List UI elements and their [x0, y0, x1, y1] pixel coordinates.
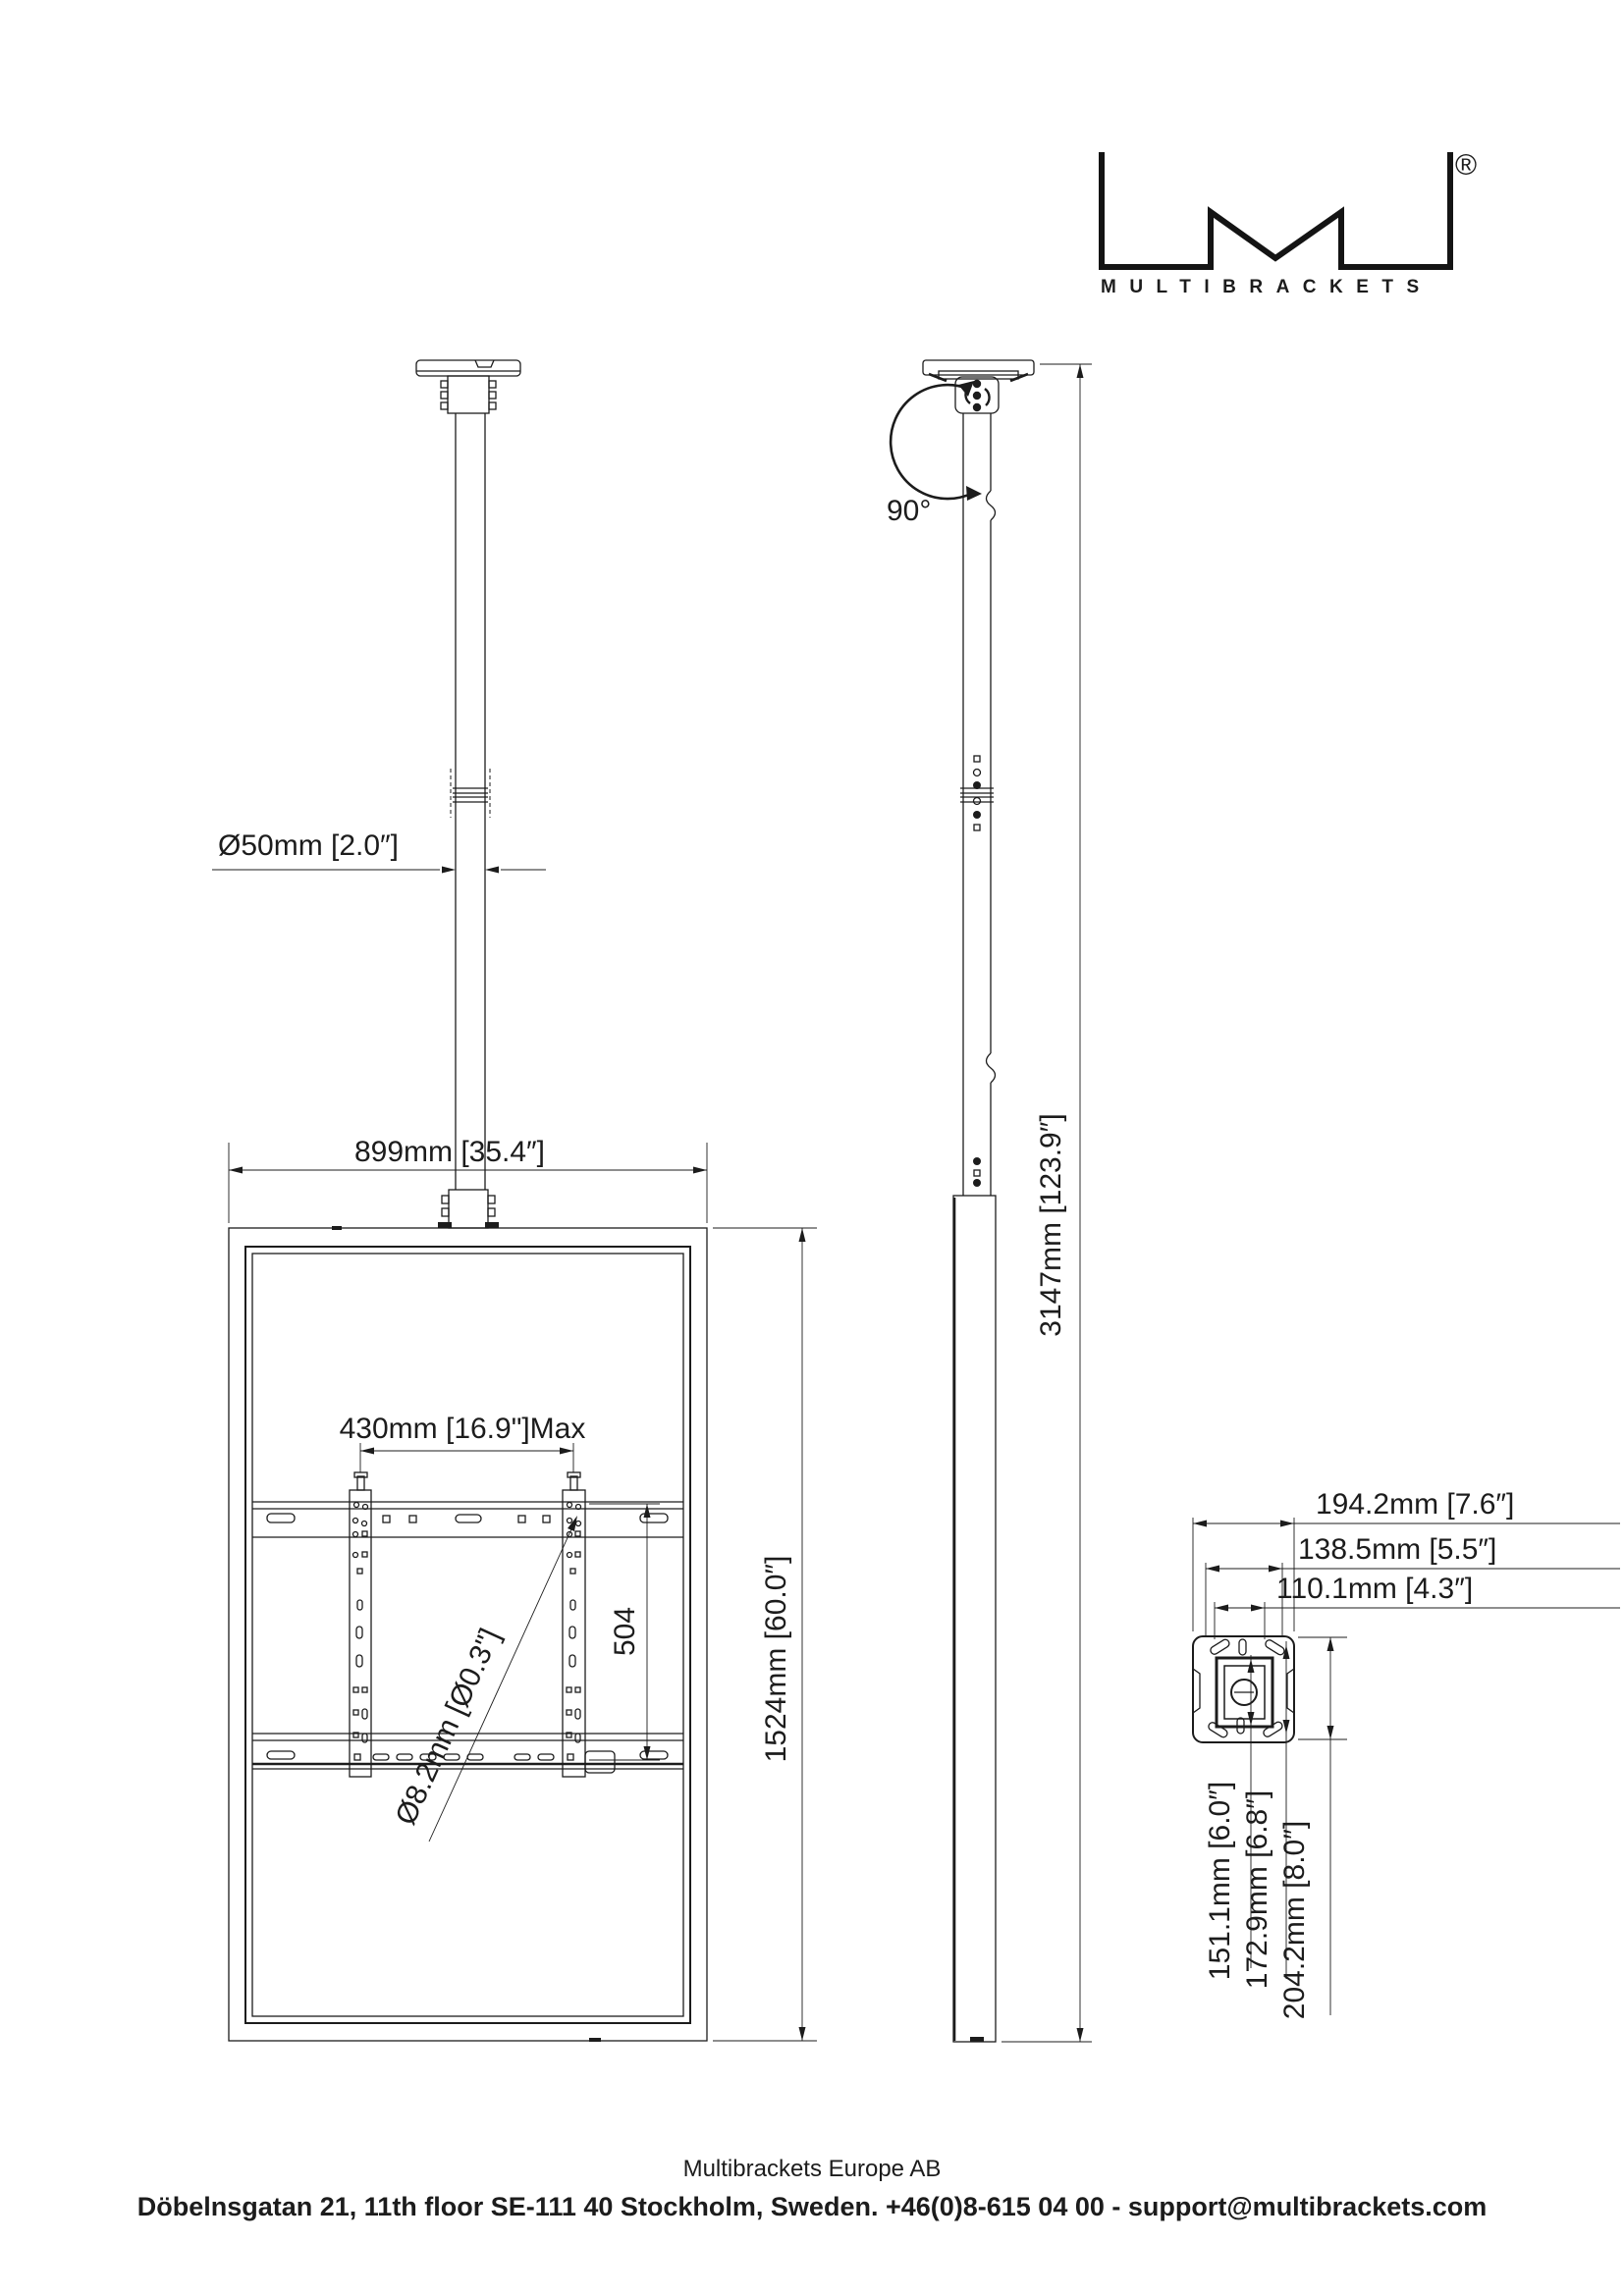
technical-drawing: MULTIBRACKETS ® [0, 0, 1624, 2296]
dim-screen-height: 1524mm [60.0″] [713, 1228, 817, 2041]
front-pole [451, 413, 490, 1190]
front-right-vesa-rail [563, 1472, 615, 1777]
front-bottom-rail [252, 1734, 683, 1769]
rotation-angle-label: 90° [887, 495, 931, 527]
bracket-height-label: 504 [609, 1607, 641, 1656]
side-ceiling-plate [923, 360, 1034, 381]
detail-height-middle-label: 172.9mm [6.8″] [1241, 1790, 1273, 1989]
detail-height-outer-label: 204.2mm [8.0″] [1278, 1821, 1311, 2019]
side-pole [960, 413, 996, 1196]
side-screen-profile [953, 1196, 996, 2042]
footer: Multibrackets Europe AB Döbelnsgatan 21,… [137, 2156, 1488, 2221]
detail-width-inner-label: 110.1mm [4.3″] [1276, 1573, 1473, 1605]
dim-total-height: 3147mm [123.9″] [1001, 364, 1092, 2042]
front-screen-bracket [438, 1190, 499, 1228]
dim-bracket-height: 504 [589, 1504, 660, 1760]
front-pole-coupler [441, 376, 496, 413]
footer-address: Döbelnsgatan 21, 11th floor SE-111 40 St… [137, 2192, 1488, 2221]
screen-height-label: 1524mm [60.0″] [760, 1556, 792, 1763]
front-left-vesa-rail [350, 1472, 371, 1777]
bracket-width-label: 430mm [16.9"]Max [340, 1413, 586, 1445]
total-height-label: 3147mm [123.9″] [1035, 1113, 1067, 1336]
detail-width-middle-label: 138.5mm [5.5″] [1298, 1533, 1496, 1566]
detail-height-inner-label: 151.1mm [6.0″] [1204, 1782, 1236, 1980]
side-view: 90° 3147mm [123.9″] [887, 360, 1092, 2042]
footer-company: Multibrackets Europe AB [683, 2156, 942, 2182]
registered-mark-icon: ® [1455, 149, 1477, 182]
datasheet-page: MULTIBRACKETS ® [0, 0, 1624, 2296]
dim-detail-width-inner: 110.1mm [4.3″] [1215, 1573, 1620, 1639]
dim-hole-diameter: Ø8.2mm [Ø0.3"] [390, 1516, 577, 1842]
logo-wordmark: MULTIBRACKETS [1101, 277, 1433, 297]
screen-width-label: 899mm [35.4″] [354, 1136, 545, 1168]
front-top-rail [252, 1502, 683, 1537]
dim-detail-height-outer: 204.2mm [8.0″] [1278, 1637, 1347, 2019]
dim-bracket-width: 430mm [16.9"]Max [340, 1413, 586, 1472]
detail-plate [1193, 1636, 1294, 1742]
pole-diameter-label: Ø50mm [2.0″] [218, 829, 399, 862]
side-swivel-block [955, 377, 999, 413]
detail-width-outer-label: 194.2mm [7.6″] [1316, 1488, 1514, 1521]
detail-view: 194.2mm [7.6″] 138.5mm [5.5″] 110.1mm [4… [1193, 1488, 1620, 2019]
dim-pole-diameter: Ø50mm [2.0″] [212, 829, 546, 874]
front-view: Ø50mm [2.0″] 899mm [35.4″] 430mm [16.9"]… [212, 360, 817, 2042]
dim-screen-width: 899mm [35.4″] [229, 1136, 707, 1223]
multibrackets-logo: MULTIBRACKETS ® [1101, 149, 1477, 297]
front-ceiling-plate [416, 360, 520, 376]
